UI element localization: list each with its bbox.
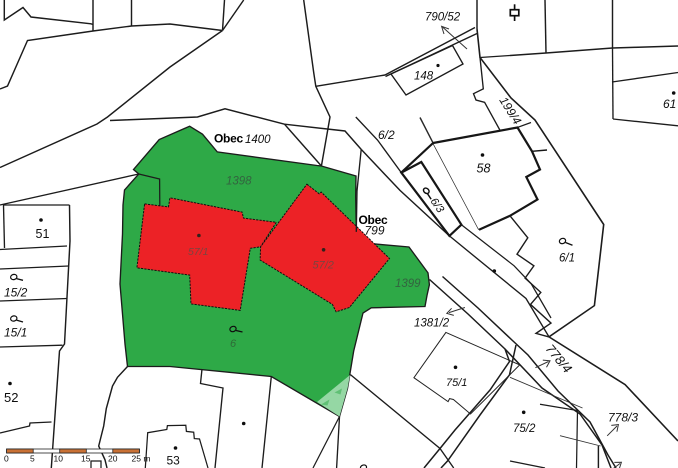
svg-text:1400: 1400 [245,134,271,146]
svg-text:20: 20 [108,454,118,464]
svg-text:15: 15 [81,454,91,464]
svg-text:75/2: 75/2 [513,423,536,435]
svg-text:15/1: 15/1 [4,326,27,340]
svg-text:6: 6 [230,338,237,350]
svg-text:790/52: 790/52 [425,12,461,24]
svg-text:51: 51 [36,227,50,241]
svg-text:61: 61 [663,97,676,111]
svg-text:52: 52 [4,390,18,405]
svg-text:1398: 1398 [226,176,252,188]
svg-text:799: 799 [365,224,385,238]
svg-text:5: 5 [30,454,35,464]
svg-text:57/2: 57/2 [313,260,334,272]
svg-text:1381/2: 1381/2 [414,318,450,330]
svg-text:10: 10 [54,454,64,464]
svg-text:0: 0 [4,454,9,464]
svg-text:53: 53 [167,454,181,468]
svg-text:6/2: 6/2 [378,128,395,142]
svg-text:1399: 1399 [395,278,421,290]
svg-text:6/1: 6/1 [559,253,575,265]
svg-text:75/1: 75/1 [446,377,467,389]
svg-text:Obec: Obec [214,132,243,146]
svg-text:57/1: 57/1 [188,246,208,258]
svg-text:148: 148 [414,71,434,83]
svg-text:15/2: 15/2 [4,286,28,300]
svg-text:25 m: 25 m [132,454,151,464]
svg-text:778/3: 778/3 [608,411,638,425]
svg-text:58: 58 [477,162,491,176]
